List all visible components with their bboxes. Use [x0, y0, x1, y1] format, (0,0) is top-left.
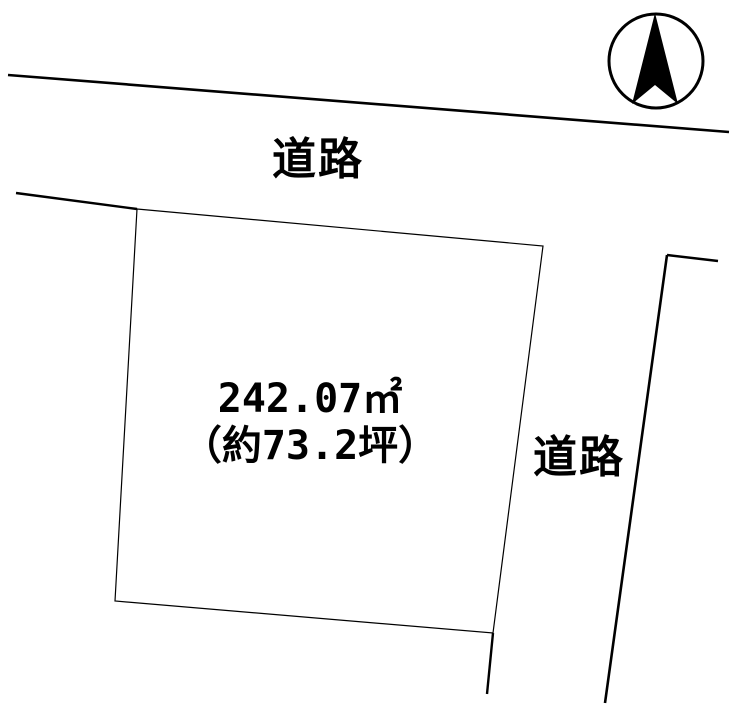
- plot-drawing: [0, 0, 742, 706]
- road-top-label: 道路: [272, 137, 364, 183]
- road-top-lower-edge: [16, 193, 137, 209]
- parcel-area-tsubo: （約73.2坪）: [125, 423, 495, 470]
- road-right-top-stub: [667, 255, 718, 261]
- parcel-area-m2: 242.07㎡: [125, 376, 495, 423]
- parcel-area-label: 242.07㎡ （約73.2坪）: [125, 376, 495, 470]
- land-plot-diagram: 道路 道路 242.07㎡ （約73.2坪）: [0, 0, 742, 706]
- north-arrow-icon: [632, 13, 678, 104]
- road-top-upper-edge: [8, 75, 729, 132]
- road-right-label: 道路: [533, 435, 625, 481]
- road-right-left-edge-lower: [487, 633, 493, 694]
